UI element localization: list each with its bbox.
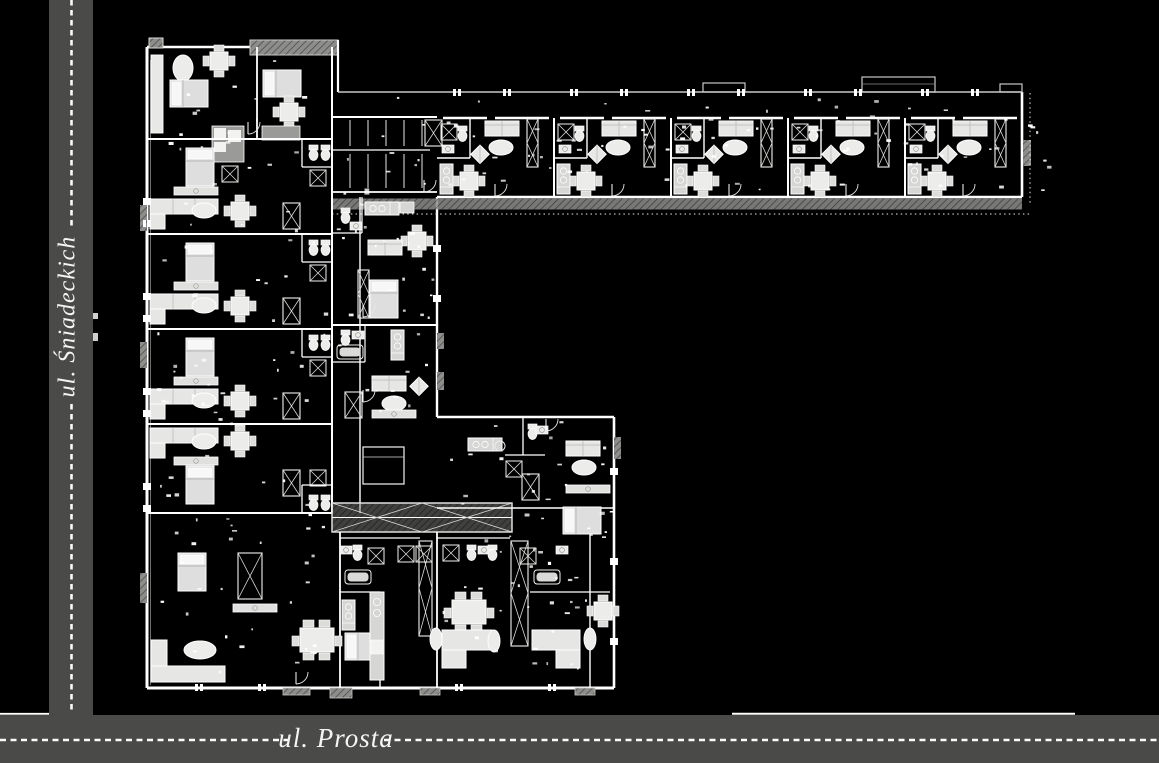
top-wing xyxy=(437,89,1022,197)
road-horizontal xyxy=(0,714,1159,763)
connector-wing xyxy=(332,197,441,418)
top-wing-gallery xyxy=(332,199,1022,210)
storage-room xyxy=(332,117,442,192)
floor-plan-scene: ul. Śniadeckich ul. Prosta xyxy=(0,0,1159,763)
road-vertical xyxy=(49,0,98,715)
balcony-strip-top xyxy=(250,40,338,55)
floor-plan-svg xyxy=(0,0,1159,763)
left-wing xyxy=(143,45,360,513)
bottom-right-wing xyxy=(308,417,619,688)
